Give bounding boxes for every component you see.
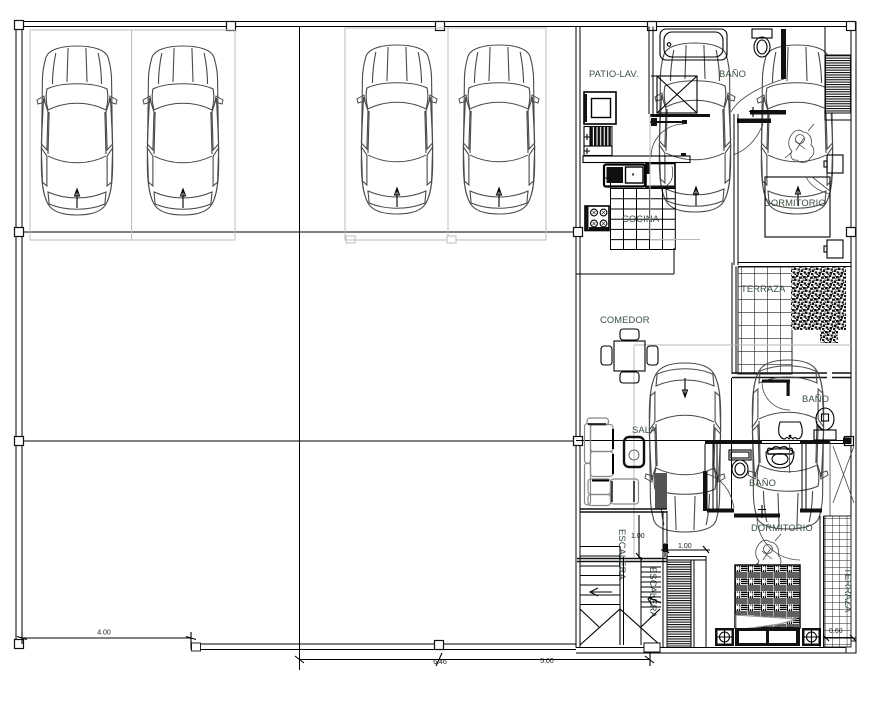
svg-text:6.46: 6.46 bbox=[433, 659, 447, 666]
svg-text:BAÑO: BAÑO bbox=[749, 477, 776, 488]
svg-text:1.00: 1.00 bbox=[631, 533, 645, 540]
svg-text:PATIO-LAV.: PATIO-LAV. bbox=[589, 68, 639, 79]
svg-text:TERRAZA: TERRAZA bbox=[741, 283, 786, 294]
svg-text:4.00: 4.00 bbox=[97, 630, 111, 637]
svg-text:SALA: SALA bbox=[632, 424, 657, 435]
svg-text:5.00: 5.00 bbox=[540, 658, 554, 665]
svg-text:1.00: 1.00 bbox=[678, 543, 692, 550]
svg-text:0.60: 0.60 bbox=[829, 628, 843, 635]
svg-text:COMEDOR: COMEDOR bbox=[600, 314, 650, 325]
svg-text:TERRAZA: TERRAZA bbox=[843, 568, 854, 613]
svg-text:DORMITORIO: DORMITORIO bbox=[764, 197, 826, 208]
svg-text:BAÑO: BAÑO bbox=[719, 68, 746, 79]
svg-text:ESCALERA: ESCALERA bbox=[617, 529, 628, 580]
svg-text:ESCALERA: ESCALERA bbox=[648, 567, 659, 618]
svg-text:DORMITORIO: DORMITORIO bbox=[751, 522, 813, 533]
svg-text:BAÑO: BAÑO bbox=[802, 393, 829, 404]
svg-text:COCINA: COCINA bbox=[622, 213, 660, 224]
